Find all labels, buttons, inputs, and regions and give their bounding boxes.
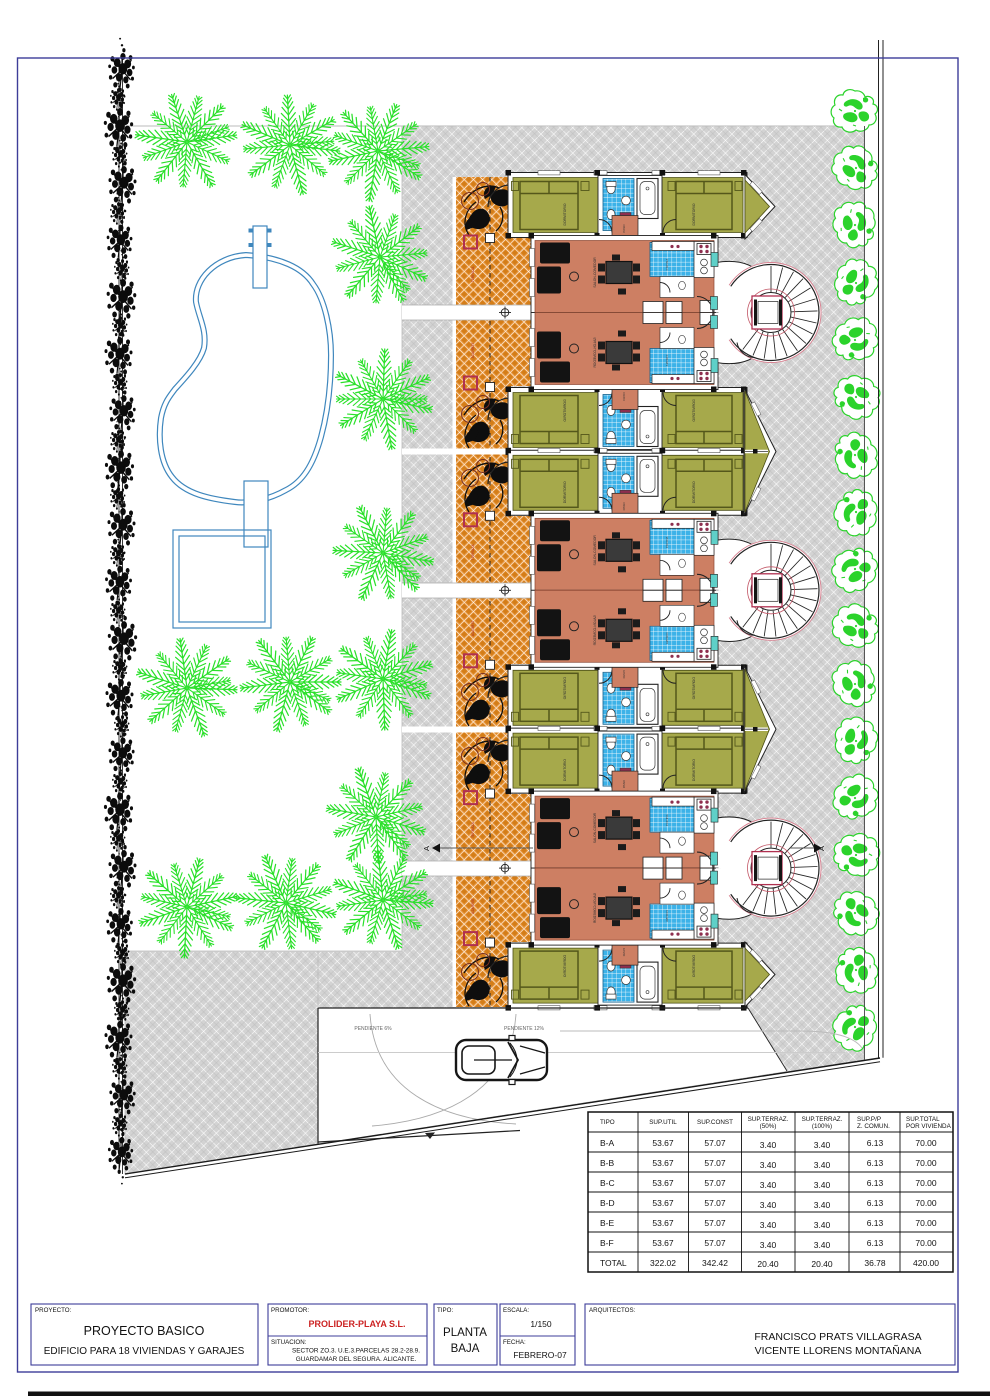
svg-text:322.02: 322.02: [650, 1258, 676, 1268]
svg-text:FEBRERO-07: FEBRERO-07: [513, 1350, 567, 1360]
svg-text:BAJA: BAJA: [451, 1343, 480, 1355]
svg-text:PLANTA: PLANTA: [443, 1327, 487, 1339]
svg-text:70.00: 70.00: [915, 1198, 937, 1208]
svg-text:SUP.CONST: SUP.CONST: [697, 1119, 733, 1126]
svg-text:20.40: 20.40: [811, 1259, 833, 1269]
svg-text:SECTOR ZO.3. U.E.3.PARCELAS 28: SECTOR ZO.3. U.E.3.PARCELAS 28.2-28.9.: [292, 1348, 420, 1355]
svg-text:6.13: 6.13: [867, 1158, 884, 1168]
svg-text:POR VIVIENDA: POR VIVIENDA: [906, 1123, 952, 1130]
svg-text:FRANCISCO PRATS VILLAGRASA: FRANCISCO PRATS VILLAGRASA: [754, 1331, 921, 1343]
svg-text:53.67: 53.67: [652, 1198, 674, 1208]
svg-text:3.40: 3.40: [814, 1240, 831, 1250]
svg-text:53.67: 53.67: [652, 1218, 674, 1228]
svg-text:36.78: 36.78: [864, 1258, 886, 1268]
svg-text:PROLIDER-PLAYA S.L.: PROLIDER-PLAYA S.L.: [308, 1319, 405, 1329]
svg-text:57.07: 57.07: [704, 1178, 726, 1188]
svg-text:PROYECTO BASICO: PROYECTO BASICO: [84, 1324, 205, 1338]
svg-text:6.13: 6.13: [867, 1198, 884, 1208]
svg-text:SUP.TERRAZ.: SUP.TERRAZ.: [748, 1116, 789, 1123]
svg-text:70.00: 70.00: [915, 1238, 937, 1248]
svg-text:SUP.TOTAL: SUP.TOTAL: [906, 1116, 940, 1123]
svg-text:3.40: 3.40: [760, 1180, 777, 1190]
svg-text:SUP.P/P: SUP.P/P: [857, 1116, 881, 1123]
svg-text:20.40: 20.40: [757, 1259, 779, 1269]
svg-text:GUARDAMAR DEL SEGURA. ALICANTE: GUARDAMAR DEL SEGURA. ALICANTE.: [296, 1356, 417, 1363]
svg-text:3.40: 3.40: [760, 1160, 777, 1170]
svg-text:B-F: B-F: [600, 1238, 614, 1248]
svg-text:PROYECTO:: PROYECTO:: [35, 1307, 72, 1314]
svg-text:70.00: 70.00: [915, 1158, 937, 1168]
svg-text:53.67: 53.67: [652, 1238, 674, 1248]
svg-text:57.07: 57.07: [704, 1198, 726, 1208]
svg-text:3.40: 3.40: [814, 1160, 831, 1170]
svg-text:57.07: 57.07: [704, 1238, 726, 1248]
svg-text:6.13: 6.13: [867, 1178, 884, 1188]
svg-text:342.42: 342.42: [702, 1258, 728, 1268]
svg-text:SUP.UTIL: SUP.UTIL: [649, 1119, 677, 1126]
svg-text:57.07: 57.07: [704, 1138, 726, 1148]
svg-text:B-E: B-E: [600, 1218, 615, 1228]
svg-text:53.67: 53.67: [652, 1158, 674, 1168]
svg-text:A: A: [422, 846, 431, 851]
svg-text:SUP.TERRAZ.: SUP.TERRAZ.: [802, 1116, 843, 1123]
svg-text:(50%): (50%): [760, 1123, 777, 1130]
svg-text:3.40: 3.40: [760, 1200, 777, 1210]
svg-text:70.00: 70.00: [915, 1178, 937, 1188]
svg-text:57.07: 57.07: [704, 1218, 726, 1228]
svg-text:SITUACION:: SITUACION:: [271, 1339, 307, 1346]
svg-text:ARQUITECTOS:: ARQUITECTOS:: [589, 1307, 636, 1314]
svg-text:1/150: 1/150: [530, 1319, 552, 1329]
svg-text:TIPO: TIPO: [600, 1119, 615, 1126]
svg-text:53.67: 53.67: [652, 1138, 674, 1148]
svg-text:PENDIENTE 12%: PENDIENTE 12%: [504, 1026, 545, 1032]
svg-text:6.13: 6.13: [867, 1238, 884, 1248]
svg-text:(100%): (100%): [812, 1123, 832, 1130]
svg-text:6.13: 6.13: [867, 1138, 884, 1148]
svg-text:Z. COMUN.: Z. COMUN.: [857, 1123, 890, 1130]
svg-text:3.40: 3.40: [814, 1220, 831, 1230]
svg-text:57.07: 57.07: [704, 1158, 726, 1168]
svg-text:EDIFICIO PARA 18 VIVIENDAS Y G: EDIFICIO PARA 18 VIVIENDAS Y GARAJES: [44, 1346, 245, 1357]
svg-text:B-A: B-A: [600, 1138, 615, 1148]
svg-text:3.40: 3.40: [760, 1140, 777, 1150]
svg-text:53.67: 53.67: [652, 1178, 674, 1188]
svg-text:70.00: 70.00: [915, 1138, 937, 1148]
svg-text:B-C: B-C: [600, 1178, 615, 1188]
svg-text:70.00: 70.00: [915, 1218, 937, 1228]
svg-text:TIPO:: TIPO:: [437, 1307, 453, 1314]
svg-text:3.40: 3.40: [814, 1200, 831, 1210]
svg-text:3.40: 3.40: [814, 1140, 831, 1150]
svg-text:ESCALA:: ESCALA:: [503, 1307, 529, 1314]
svg-text:TOTAL: TOTAL: [600, 1258, 627, 1268]
svg-text:3.40: 3.40: [760, 1220, 777, 1230]
svg-text:VICENTE LLORENS MONTAÑANA: VICENTE LLORENS MONTAÑANA: [755, 1344, 922, 1357]
svg-text:420.00: 420.00: [913, 1258, 939, 1268]
svg-text:PENDIENTE 6%: PENDIENTE 6%: [354, 1026, 392, 1032]
svg-text:B-D: B-D: [600, 1198, 615, 1208]
svg-text:A: A: [817, 846, 826, 851]
svg-text:3.40: 3.40: [814, 1180, 831, 1190]
svg-text:FECHA:: FECHA:: [503, 1339, 526, 1346]
svg-text:B-B: B-B: [600, 1158, 615, 1168]
svg-text:PROMOTOR:: PROMOTOR:: [271, 1307, 309, 1314]
svg-text:6.13: 6.13: [867, 1218, 884, 1228]
svg-text:3.40: 3.40: [760, 1240, 777, 1250]
